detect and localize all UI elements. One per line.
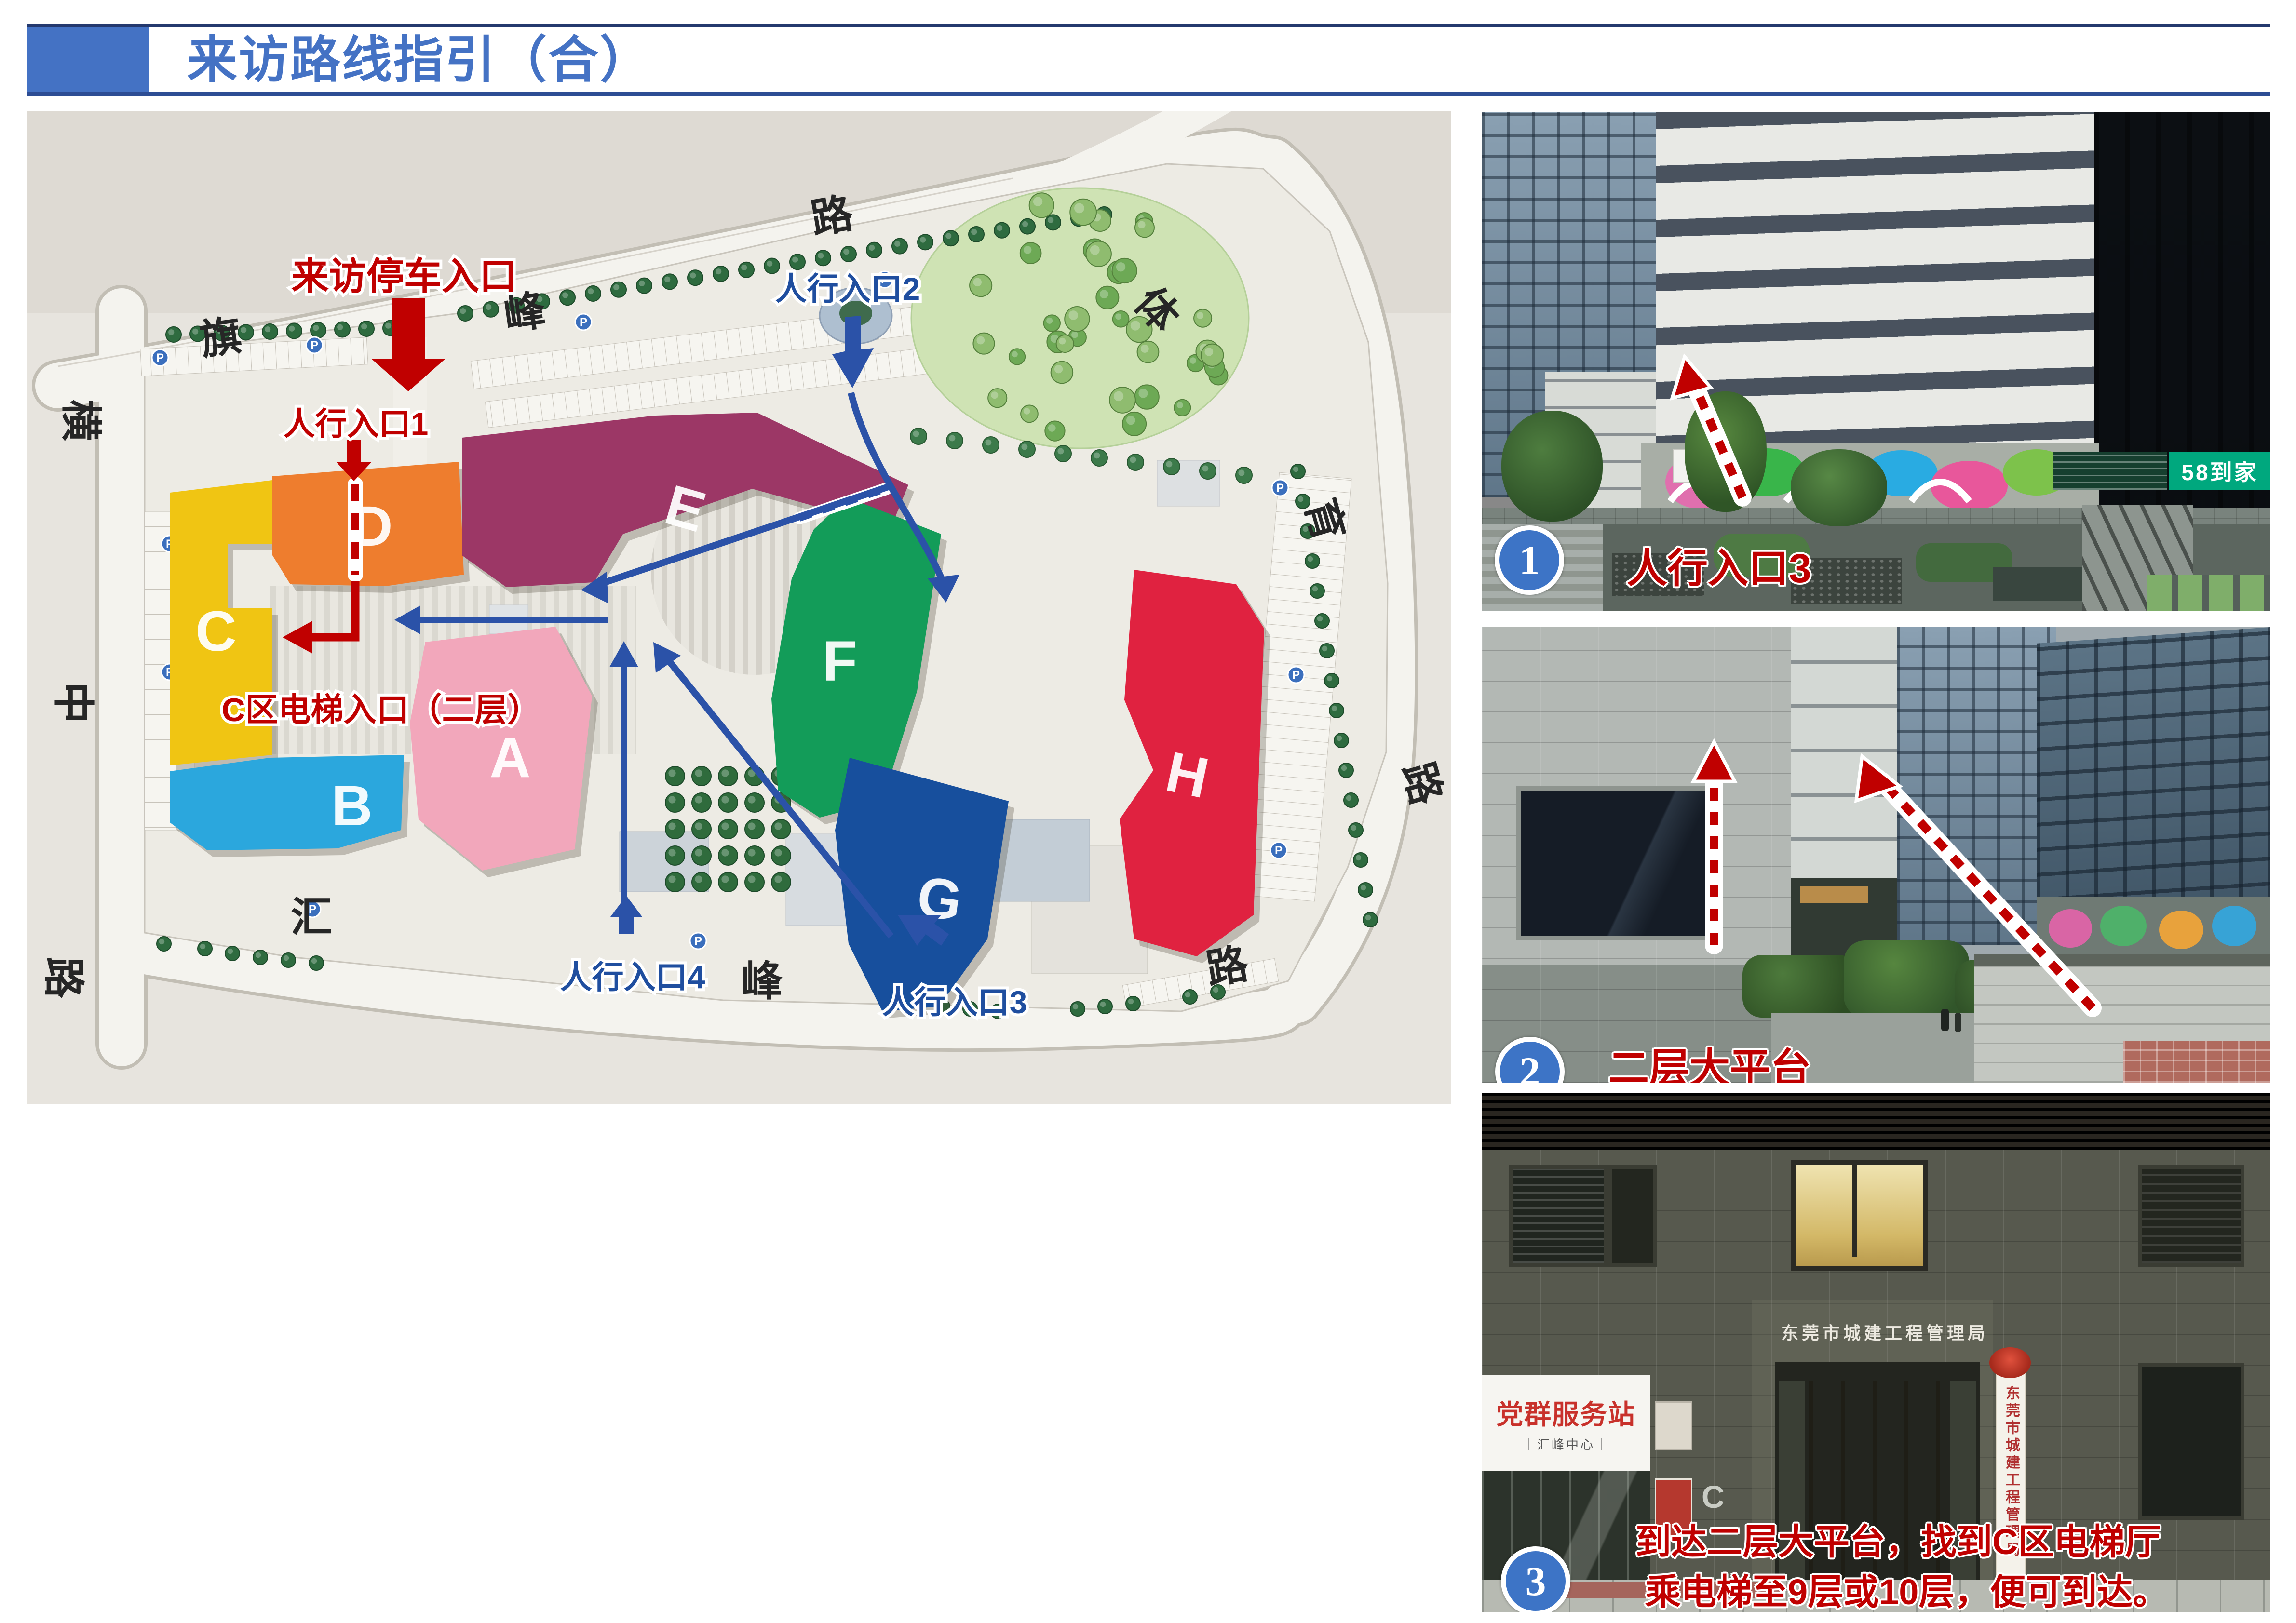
photo3-caption-line2: 乘电梯至9层或10层，便可到达。 bbox=[1645, 1563, 2168, 1612]
building-letter-C: C bbox=[195, 600, 236, 663]
photo1-annotations bbox=[1482, 112, 2270, 611]
service-sign-subtext: ｜汇峰中心｜ bbox=[1523, 1435, 1609, 1453]
label-parking-entrance: 来访停车入口 bbox=[291, 255, 517, 297]
badge-number: 1 bbox=[1519, 536, 1540, 584]
road-label: 路 bbox=[807, 190, 856, 243]
notice-board bbox=[1655, 1401, 1692, 1450]
label-ped-entrance-4: 人行入口4 bbox=[560, 959, 705, 995]
badge-number: 3 bbox=[1526, 1557, 1546, 1605]
header-top-rule bbox=[27, 24, 2270, 27]
window-lit bbox=[1791, 1160, 1928, 1271]
label-ped-entrance-2: 人行入口2 bbox=[775, 271, 920, 307]
building-letter-F: F bbox=[823, 630, 857, 693]
road-label: 峰 bbox=[741, 958, 783, 1005]
label-ped-entrance-3-map: 人行入口3 bbox=[882, 984, 1027, 1020]
site-plan-svg: PPPPPPPPPPP A B C D E F G H bbox=[27, 111, 1451, 1104]
photo2-annotations bbox=[1482, 627, 2270, 1083]
photo1-number-badge: 1 bbox=[1495, 525, 1564, 595]
road-label: 汇 bbox=[291, 894, 332, 940]
window-dark bbox=[2138, 1165, 2244, 1267]
badge-number: 2 bbox=[1520, 1047, 1540, 1083]
road-label: 路 bbox=[1202, 940, 1252, 993]
photo3-number-badge: 3 bbox=[1501, 1546, 1570, 1612]
roof-band bbox=[1482, 1093, 2270, 1150]
photo1-caption: 人行入口3 bbox=[1627, 536, 1811, 594]
road-label: 旗 bbox=[197, 312, 245, 363]
wall-sign: 东莞市城建工程管理局 bbox=[1781, 1319, 1984, 1344]
site-map-panel: PPPPPPPPPPP A B C D E F G H bbox=[27, 111, 1451, 1104]
road-label: 横 bbox=[57, 400, 104, 441]
header-bottom-rule bbox=[27, 92, 2270, 96]
svg-text:P: P bbox=[156, 351, 164, 364]
label-ped-entrance-1: 人行入口1 bbox=[284, 406, 429, 442]
photo-second-floor-platform: 2 二层大平台 bbox=[1482, 627, 2270, 1083]
svg-text:P: P bbox=[1292, 669, 1300, 682]
svg-text:P: P bbox=[580, 316, 587, 329]
photo3-caption-line1: 到达二层大平台，找到C区电梯厅 bbox=[1635, 1513, 2161, 1565]
building-letter-B: B bbox=[331, 774, 372, 838]
window-dark bbox=[1509, 1165, 1608, 1267]
svg-text:P: P bbox=[694, 935, 702, 948]
window-dark bbox=[1608, 1165, 1657, 1267]
ribbon-bow bbox=[1989, 1347, 2031, 1378]
side-door bbox=[2138, 1363, 2244, 1520]
header-accent-block bbox=[27, 27, 149, 92]
photo2-caption: 二层大平台 bbox=[1608, 1036, 1811, 1083]
building-letter-A: A bbox=[489, 726, 530, 790]
service-sign-text: 党群服务站 bbox=[1496, 1393, 1636, 1432]
photo-pedestrian-entrance-3: 58到家 1 人行入口3 bbox=[1482, 112, 2270, 611]
service-station-sign: 党群服务站 ｜汇峰中心｜ bbox=[1482, 1375, 1650, 1471]
svg-text:P: P bbox=[311, 339, 318, 352]
road-label: 路 bbox=[40, 957, 86, 999]
svg-text:P: P bbox=[1275, 844, 1283, 857]
photo-building-c-entrance: 东莞市城建工程管理局 东莞市城建工程管理局 党群服务站 ｜汇峰中心｜ C 3 到… bbox=[1482, 1093, 2270, 1612]
label-elevator-entrance: C区电梯入口（二层） bbox=[221, 692, 540, 728]
road-label: 中 bbox=[50, 682, 96, 724]
svg-text:P: P bbox=[1276, 482, 1284, 495]
block-letter: C bbox=[1702, 1478, 1725, 1515]
page-title: 来访路线指引（合） bbox=[187, 30, 651, 91]
